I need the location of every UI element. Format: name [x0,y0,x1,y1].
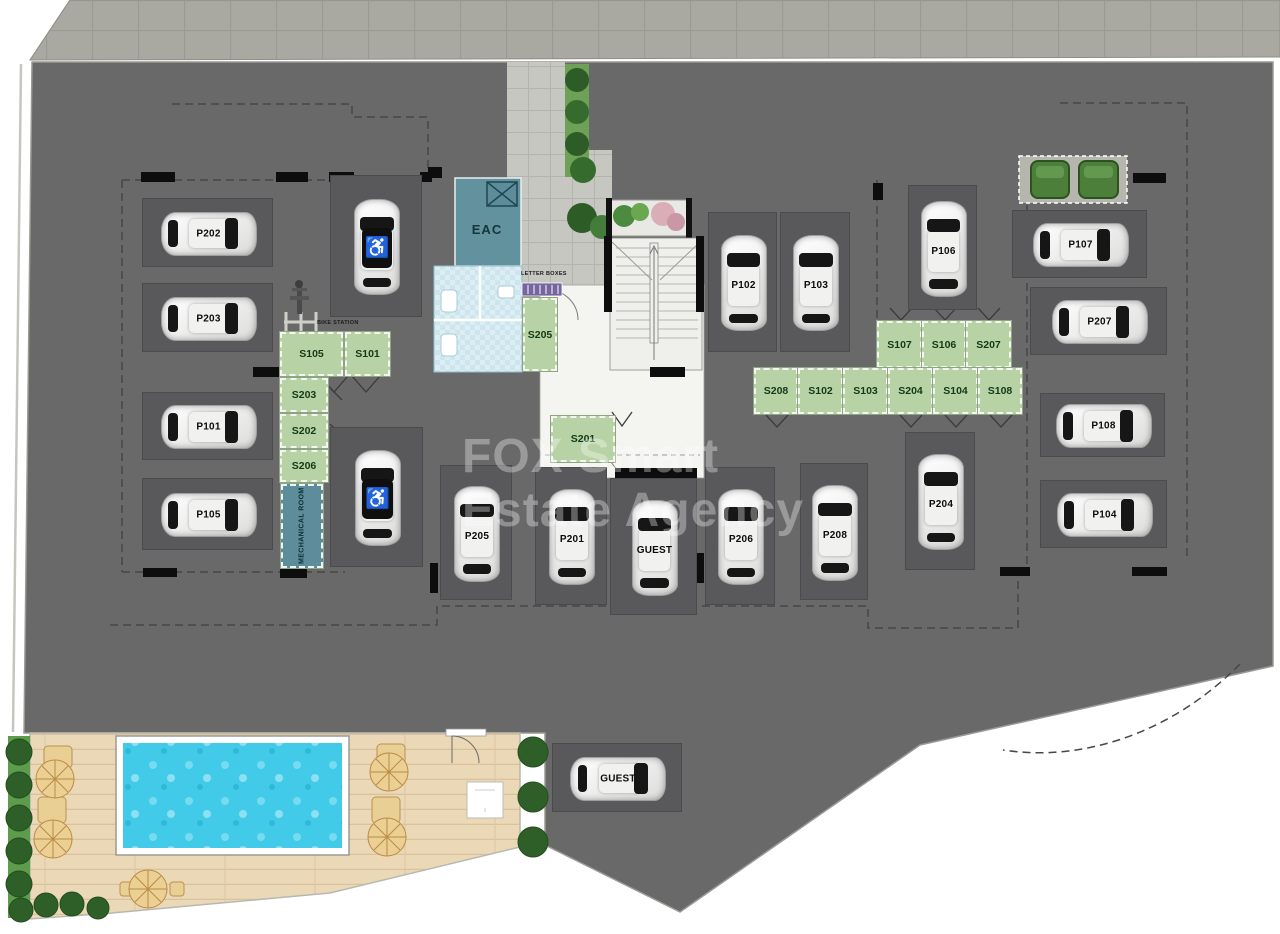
parking-floor-plan: S105S101S203S202S206S205S201S107S106S207… [0,0,1280,934]
bike-station-label: BIKE STATION [317,320,377,326]
watermark-line1: FOX Smart [462,430,882,484]
planter [606,198,692,238]
eac-room-label: EAC [452,222,522,237]
staircase-icon [610,238,702,370]
sidewalk-band [30,0,1280,60]
waste-bins [1019,156,1127,203]
agency-watermark: FOX Smart Estate Agency [462,430,882,538]
pool [116,736,349,855]
letter-boxes-label: LETTER BOXES [521,271,601,277]
pool-equipment-box [467,782,503,818]
restrooms [434,266,522,372]
letter-boxes-icon [522,283,562,296]
site-boundary [13,64,21,732]
watermark-line2: Estate Agency [462,484,882,538]
